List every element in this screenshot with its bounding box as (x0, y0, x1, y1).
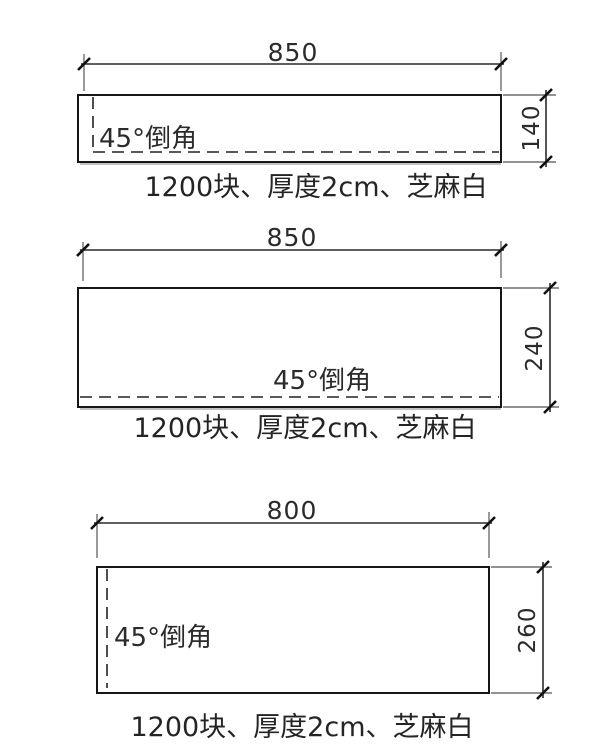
width-dimension-label: 850 (267, 223, 318, 252)
panel-2: 850 45°倒角 240 1200块、厚度2cm、芝麻白 (77, 223, 559, 444)
panel-1: 850 45°倒角 140 1200块、厚度2cm、芝麻白 (78, 38, 556, 203)
height-dimension-label: 260 (515, 607, 541, 654)
width-dimension-label: 800 (267, 496, 318, 525)
chamfer-label: 45°倒角 (99, 124, 197, 154)
width-dimension-label: 850 (268, 38, 319, 67)
chamfer-label: 45°倒角 (114, 623, 212, 653)
panel-caption: 1200块、厚度2cm、芝麻白 (144, 172, 487, 203)
panel-caption: 1200块、厚度2cm、芝麻白 (133, 413, 476, 444)
panel-caption: 1200块、厚度2cm、芝麻白 (130, 712, 473, 743)
panel-3: 800 45°倒角 260 1200块、厚度2cm、芝麻白 (91, 496, 552, 743)
chamfer-label: 45°倒角 (273, 366, 371, 396)
technical-drawing: 850 45°倒角 140 1200块、厚度2cm、芝麻白 850 45°倒角 (0, 0, 602, 755)
height-dimension-label: 140 (519, 105, 545, 152)
drawing-canvas: 850 45°倒角 140 1200块、厚度2cm、芝麻白 850 45°倒角 (0, 0, 602, 755)
height-dimension-label: 240 (522, 325, 548, 372)
